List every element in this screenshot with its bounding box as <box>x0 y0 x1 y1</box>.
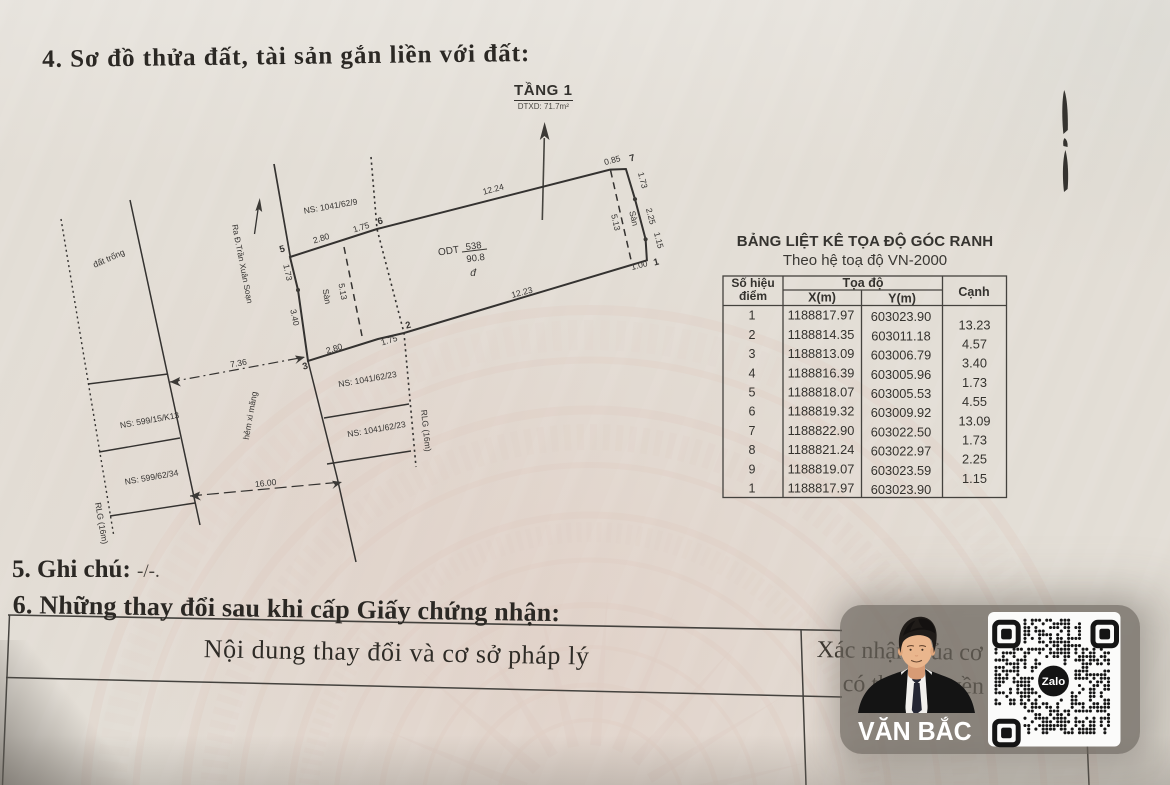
svg-text:Zalo: Zalo <box>1042 676 1065 688</box>
